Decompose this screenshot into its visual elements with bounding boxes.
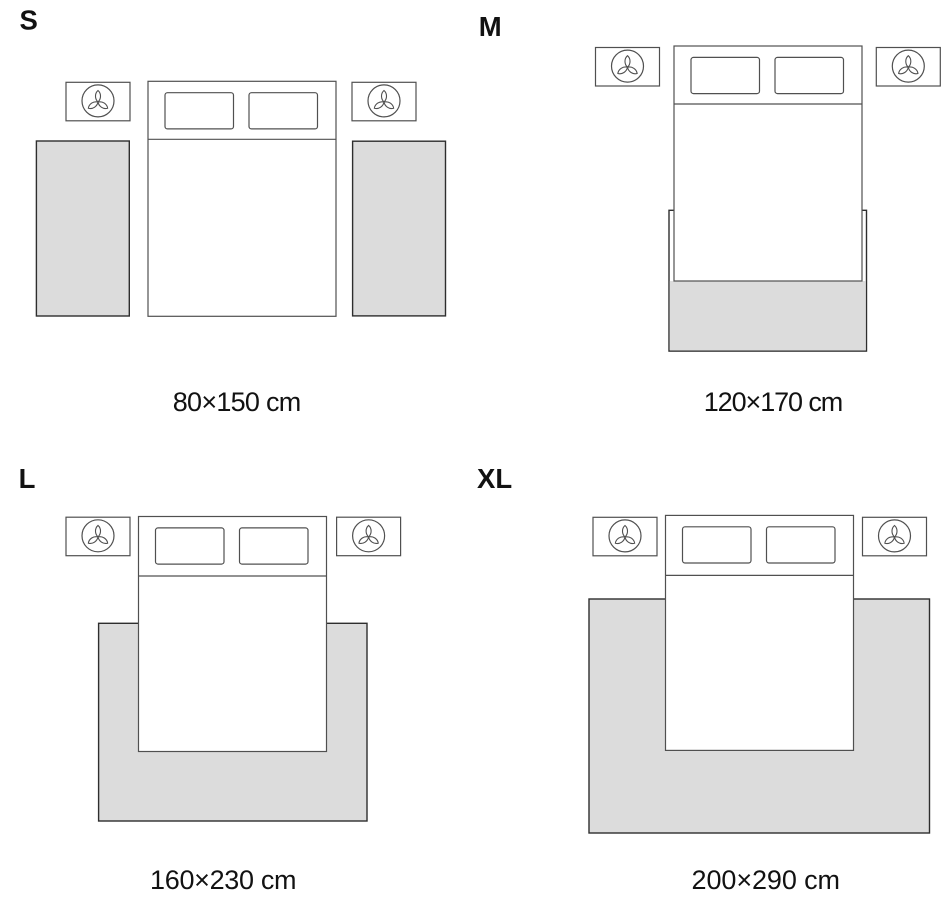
- svg-text:M: M: [479, 11, 502, 42]
- svg-text:160×230 cm: 160×230 cm: [150, 865, 296, 895]
- svg-text:L: L: [19, 463, 36, 494]
- svg-text:80×150 cm: 80×150 cm: [173, 387, 302, 417]
- svg-text:S: S: [20, 5, 38, 36]
- svg-text:200×290 cm: 200×290 cm: [692, 865, 841, 895]
- svg-text:XL: XL: [477, 463, 512, 494]
- svg-text:120×170 cm: 120×170 cm: [704, 387, 844, 417]
